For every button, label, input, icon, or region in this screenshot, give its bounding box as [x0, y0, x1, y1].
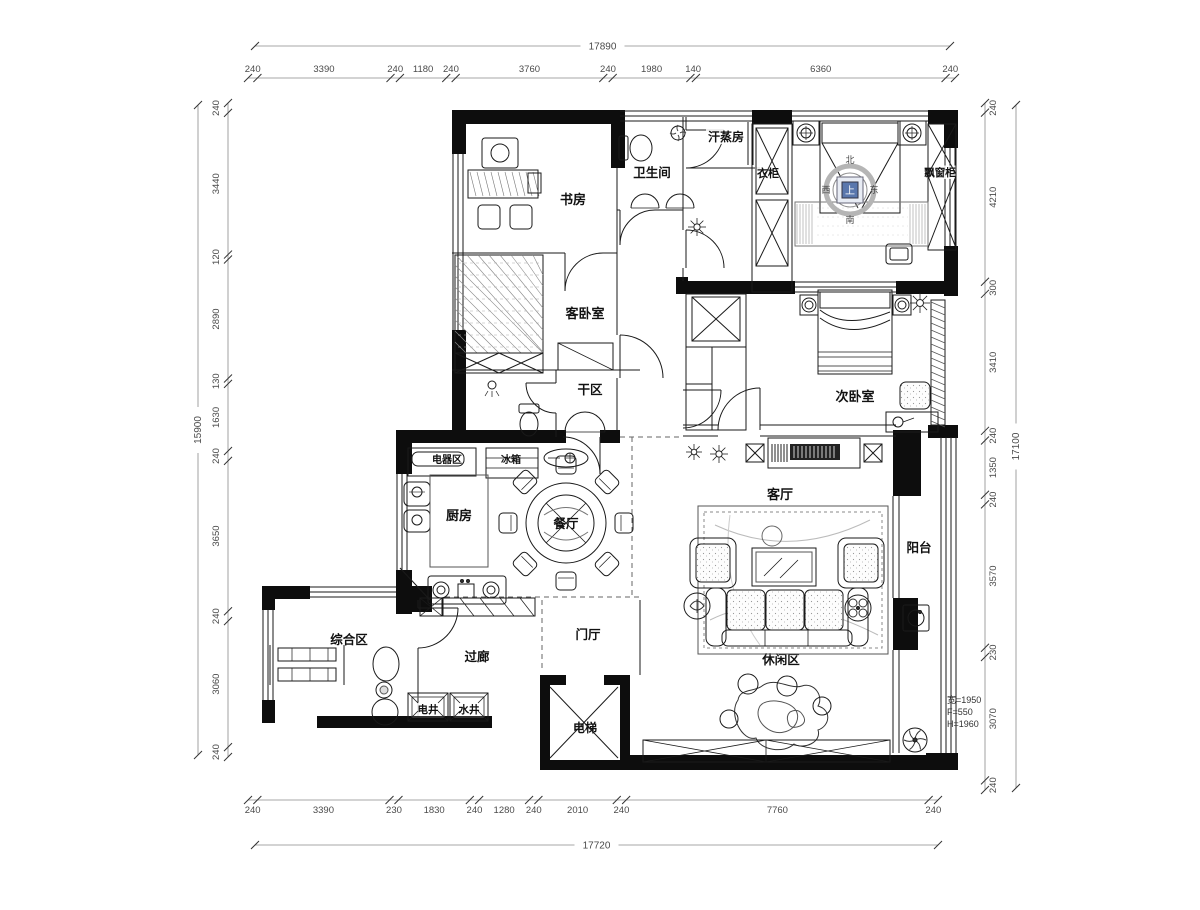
dim-value: 240: [942, 64, 958, 75]
compass-east: 东: [869, 184, 878, 195]
room-label-study: 书房: [560, 192, 586, 207]
dim-value: 1830: [424, 805, 445, 816]
compass-south: 南: [845, 214, 854, 225]
dim-value: 240: [526, 805, 542, 816]
room-label-corridor: 过廊: [464, 649, 490, 664]
dim-value: 3570: [988, 565, 999, 586]
dim-value: 1980: [641, 64, 662, 75]
dim-value: 240: [211, 448, 222, 464]
dim-value: 1280: [494, 805, 515, 816]
room-label-kitchen: 厨房: [446, 508, 472, 523]
dim-value: 240: [988, 100, 999, 116]
room-label-multi_area: 综合区: [330, 632, 368, 647]
walls: [262, 110, 958, 770]
dim-value: 3410: [988, 352, 999, 373]
dim-value: 4210: [988, 187, 999, 208]
dim-total: 15900: [193, 416, 204, 444]
dim-value: 240: [211, 608, 222, 624]
room-label-guest_bedroom: 客卧室: [565, 306, 604, 321]
room-label-sauna: 汗蒸房: [708, 129, 744, 144]
dim-value: 6360: [810, 64, 831, 75]
dim-value: 1180: [413, 64, 433, 75]
dim-value: 7760: [767, 805, 788, 816]
room-label-elec_shaft: 电井: [418, 703, 439, 716]
dim-value: 240: [211, 100, 222, 116]
dim-value: 3760: [519, 64, 540, 75]
window-note-line3: H=1960: [947, 719, 979, 729]
dim-value: 3390: [313, 805, 334, 816]
dim-value: 3070: [988, 708, 999, 729]
dim-value: 300: [988, 280, 999, 296]
dim-value: 240: [467, 805, 483, 816]
dim-value: 240: [988, 428, 999, 444]
dim-total: 17720: [583, 841, 611, 852]
room-label-dry_area: 干区: [577, 383, 603, 397]
room-label-second_bedroom: 次卧室: [835, 389, 874, 404]
compass-center: 上: [845, 185, 855, 197]
dim-value: 2010: [567, 805, 588, 816]
room-label-bathroom: 卫生间: [633, 165, 671, 180]
dim-value: 140: [685, 64, 701, 75]
dim-value: 240: [211, 744, 222, 760]
room-label-balcony: 阳台: [906, 540, 931, 555]
dim-value: 240: [614, 805, 630, 816]
dim-value: 130: [211, 373, 222, 389]
compass-north: 北: [845, 155, 854, 165]
room-label-water_shaft: 水井: [458, 703, 480, 716]
dim-value: 3650: [211, 525, 222, 546]
room-label-foyer: 门厅: [575, 627, 601, 642]
dim-value: 230: [386, 805, 402, 816]
dim-value: 240: [600, 64, 616, 75]
room-label-fridge: 冰箱: [501, 453, 521, 466]
dim-value: 240: [387, 64, 403, 75]
dim-value: 240: [443, 64, 459, 75]
room-label-living: 客厅: [767, 487, 793, 502]
room-label-appliance_area: 电器区: [432, 453, 462, 466]
dim-value: 240: [245, 805, 261, 816]
dim-value: 240: [988, 777, 999, 793]
dim-value: 3390: [313, 64, 334, 75]
dim-value: 2890: [211, 308, 222, 329]
floor-plan-canvas: 书房卫生间汗蒸房衣柜飘窗柜客卧室干区次卧室电器区冰箱厨房餐厅客厅阳台综合区过廊门…: [0, 0, 1200, 910]
dim-value: 230: [988, 644, 999, 660]
window-note-line2: F=550: [947, 707, 973, 717]
dim-value: 240: [245, 64, 261, 75]
dim-value: 3060: [211, 674, 222, 695]
dim-value: 120: [211, 249, 222, 265]
dim-value: 240: [925, 805, 941, 816]
dim-value: 3440: [211, 173, 222, 194]
dim-value: 1630: [211, 407, 222, 428]
floor-plan-svg: 书房卫生间汗蒸房衣柜飘窗柜客卧室干区次卧室电器区冰箱厨房餐厅客厅阳台综合区过廊门…: [0, 0, 1200, 910]
dim-value: 1350: [988, 457, 999, 478]
compass-west: 西: [821, 185, 830, 195]
window-note: 宽=1950F=550H=1960: [947, 694, 981, 729]
dim-total: 17890: [589, 42, 617, 53]
dim-total: 17100: [1011, 432, 1022, 460]
dim-value: 240: [988, 492, 999, 508]
window-note-line1: 宽=1950: [947, 694, 981, 705]
